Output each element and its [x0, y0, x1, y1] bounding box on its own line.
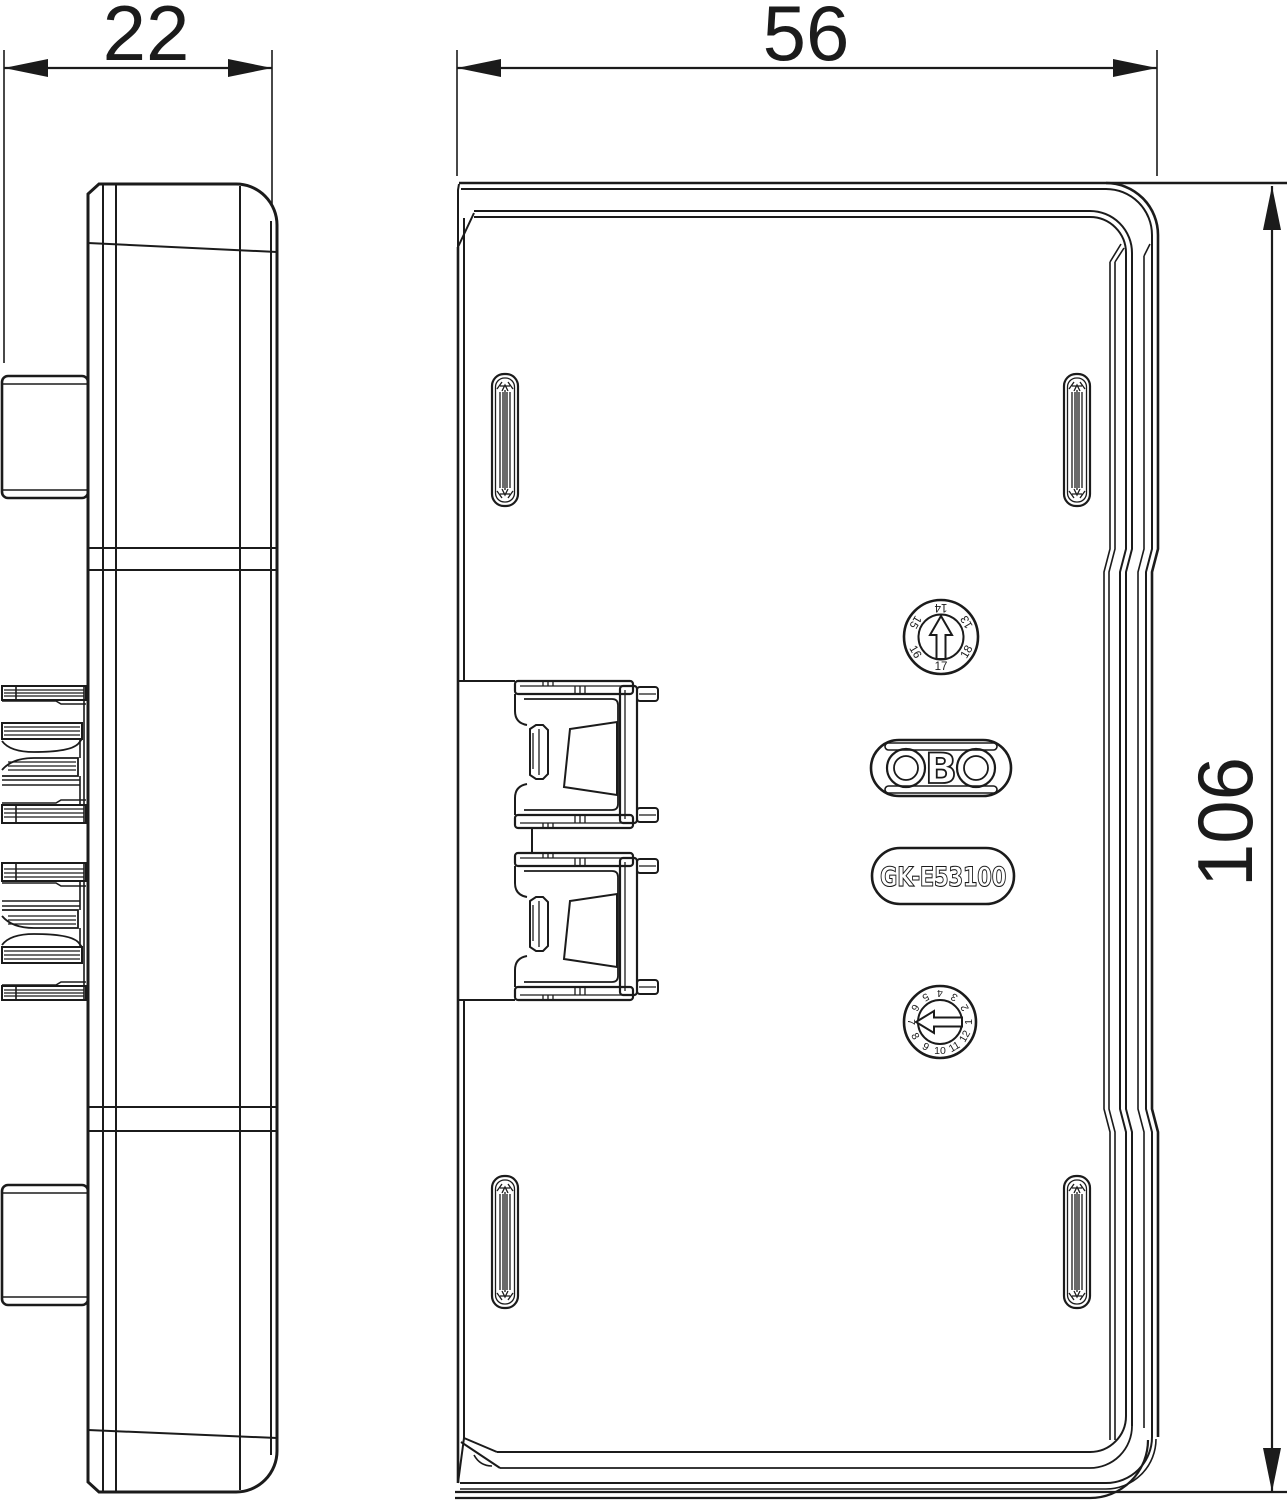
front-bottom-rim	[455, 1416, 1287, 1498]
year-dial: 14 13 18 17 16 15	[904, 600, 978, 674]
dimension-106: 106	[1181, 186, 1281, 1492]
arrow-left-icon	[457, 59, 501, 77]
part-code-label: GK-E53100	[872, 848, 1014, 904]
front-view: 14 13 18 17 16 15 B GK-E53100	[455, 183, 1287, 1498]
slot-bottom-left	[492, 1176, 518, 1308]
year-dial-number: 17	[935, 661, 948, 673]
obo-logo: B	[871, 740, 1011, 796]
month-dial-number: 7	[905, 1019, 917, 1025]
slot-top-left	[492, 374, 518, 506]
year-dial-arrow-icon	[930, 616, 952, 659]
dimension-56: 56	[457, 0, 1157, 176]
slot-bottom-right	[1064, 1176, 1090, 1308]
month-dial-number: 4	[937, 987, 943, 999]
month-dial: 4 3 2 1 12 11 10 9 8 7 6 5	[904, 986, 976, 1058]
obo-logo-o-right	[957, 749, 995, 787]
front-right-rim	[1104, 235, 1158, 1440]
side-view-bottom-tab	[2, 1185, 88, 1305]
dimension-22-label: 22	[103, 0, 190, 77]
arrow-up-icon	[1263, 186, 1281, 230]
slot-top-right	[1064, 374, 1090, 506]
front-clip-lower	[515, 853, 658, 1000]
front-clip-upper	[515, 681, 658, 828]
arrow-right-icon	[1113, 59, 1157, 77]
year-dial-number: 14	[934, 601, 947, 613]
part-code-text: GK-E53100	[880, 862, 1006, 893]
side-view-top-tab	[2, 376, 88, 498]
side-view	[2, 184, 277, 1492]
arrow-down-icon	[1263, 1448, 1281, 1492]
dimension-56-label: 56	[763, 0, 850, 77]
obo-logo-o-left	[887, 749, 925, 787]
month-dial-arrow-icon	[916, 1011, 962, 1033]
month-dial-number: 1	[963, 1019, 975, 1025]
arrow-right-icon	[228, 59, 272, 77]
drawing-page: 14 13 18 17 16 15 B GK-E53100	[0, 0, 1287, 1500]
side-view-clip-group-upper	[2, 686, 86, 823]
arrow-left-icon	[4, 59, 48, 77]
dimension-106-label: 106	[1181, 757, 1269, 887]
side-view-edge-lines	[103, 184, 271, 1492]
obo-logo-letter-b: B	[925, 744, 957, 793]
month-dial-number: 10	[934, 1045, 946, 1057]
technical-drawing: 14 13 18 17 16 15 B GK-E53100	[0, 0, 1287, 1500]
side-view-clip-group-lower	[2, 863, 86, 1000]
dimension-22: 22	[4, 0, 272, 363]
